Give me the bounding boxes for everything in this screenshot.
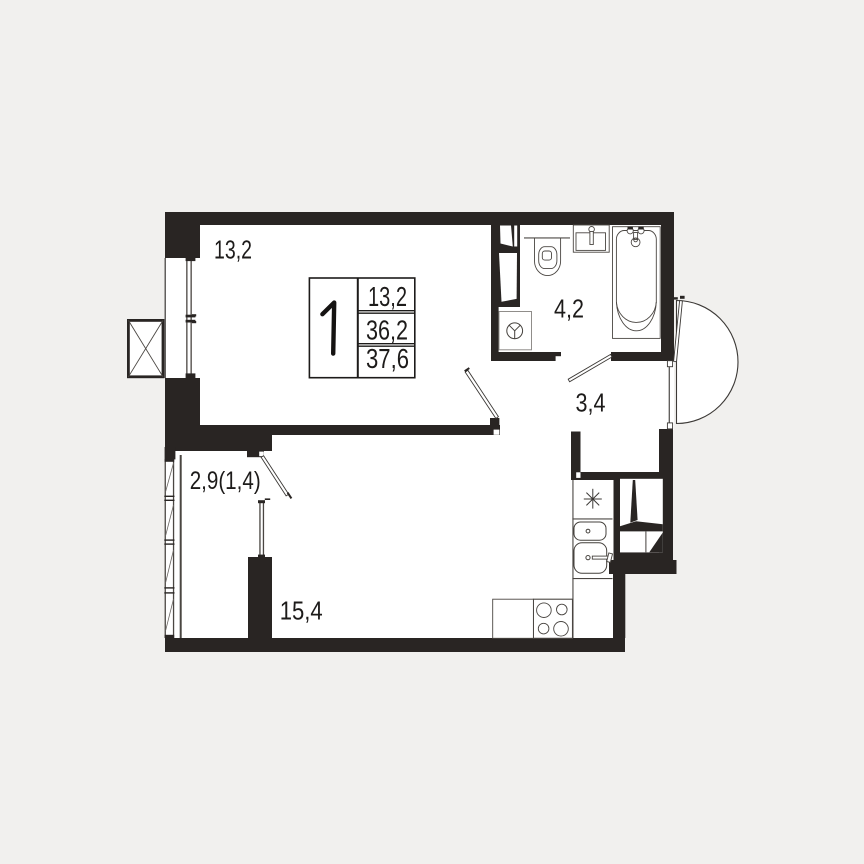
svg-text:37,6: 37,6: [366, 343, 409, 374]
svg-text:15,4: 15,4: [280, 596, 323, 626]
svg-text:3,4: 3,4: [576, 388, 606, 418]
svg-text:13,2: 13,2: [214, 235, 252, 265]
svg-text:4,2: 4,2: [554, 294, 584, 324]
svg-text:13,2: 13,2: [368, 281, 407, 312]
svg-text:36,2: 36,2: [366, 315, 408, 346]
svg-text:2,9(1,4): 2,9(1,4): [190, 467, 261, 495]
